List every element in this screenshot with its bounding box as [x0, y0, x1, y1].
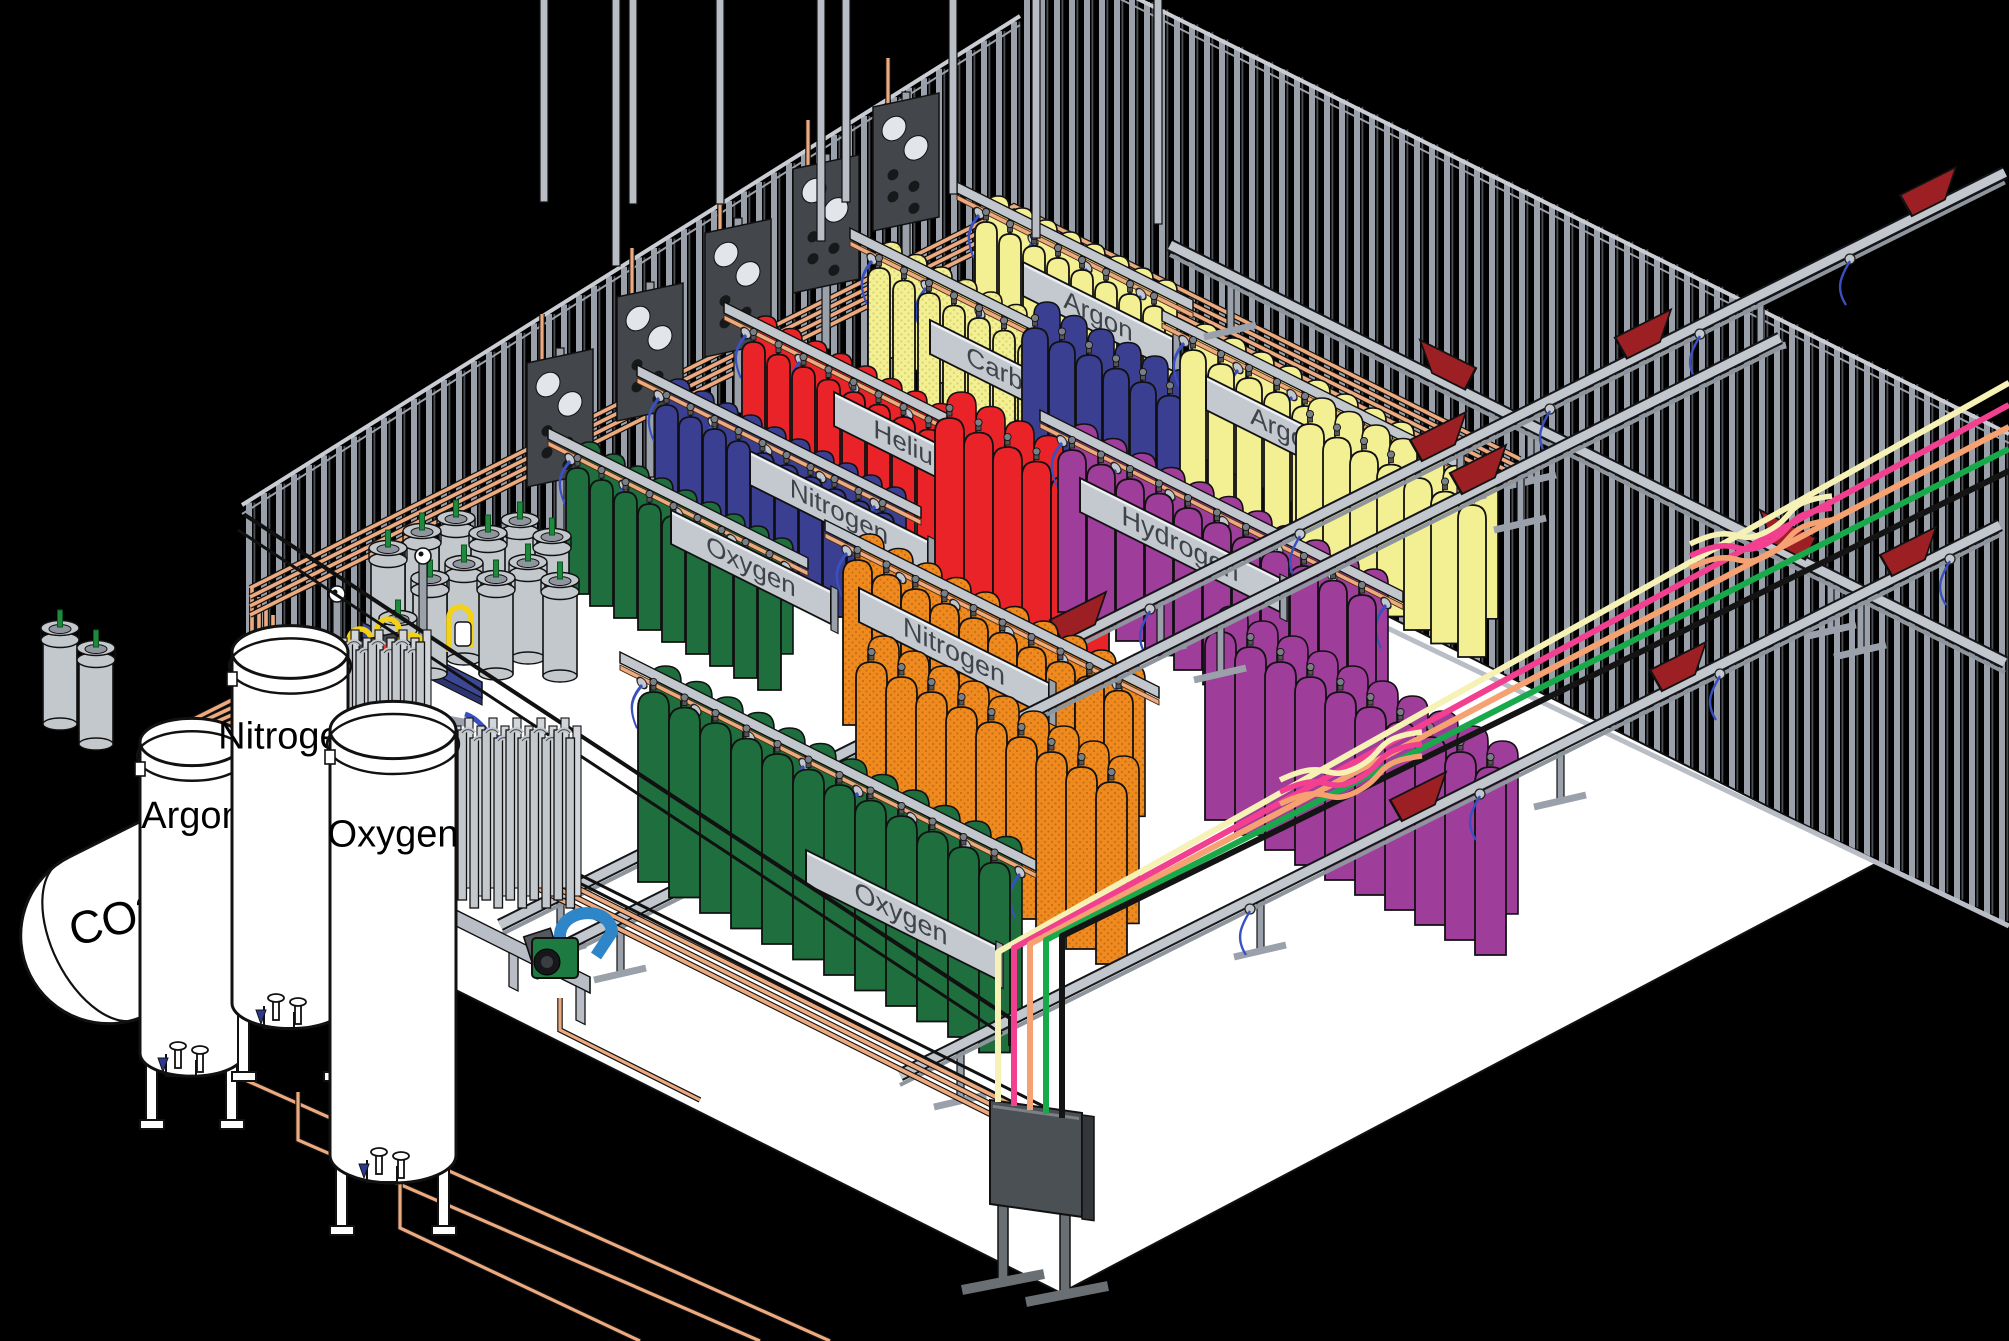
liquid-dewar: [41, 610, 79, 730]
liquid-dewar: [477, 560, 515, 680]
gas-plant-isometric-diagram: ArgonCarbon DioxideHeliumArgonNitrogenHy…: [0, 0, 2009, 1341]
tank-label-argon: Argon: [141, 795, 242, 837]
liquid-dewar: [541, 562, 579, 682]
tank-label-oxygen: Oxygen: [328, 813, 459, 855]
storage-tank-argon: Argon: [135, 718, 247, 1129]
storage-tank-oxygen: Oxygen: [325, 701, 459, 1235]
scene-svg: ArgonCarbon DioxideHeliumArgonNitrogenHy…: [0, 0, 2009, 1341]
liquid-dewar: [509, 544, 547, 664]
liquid-dewar: [77, 630, 115, 750]
